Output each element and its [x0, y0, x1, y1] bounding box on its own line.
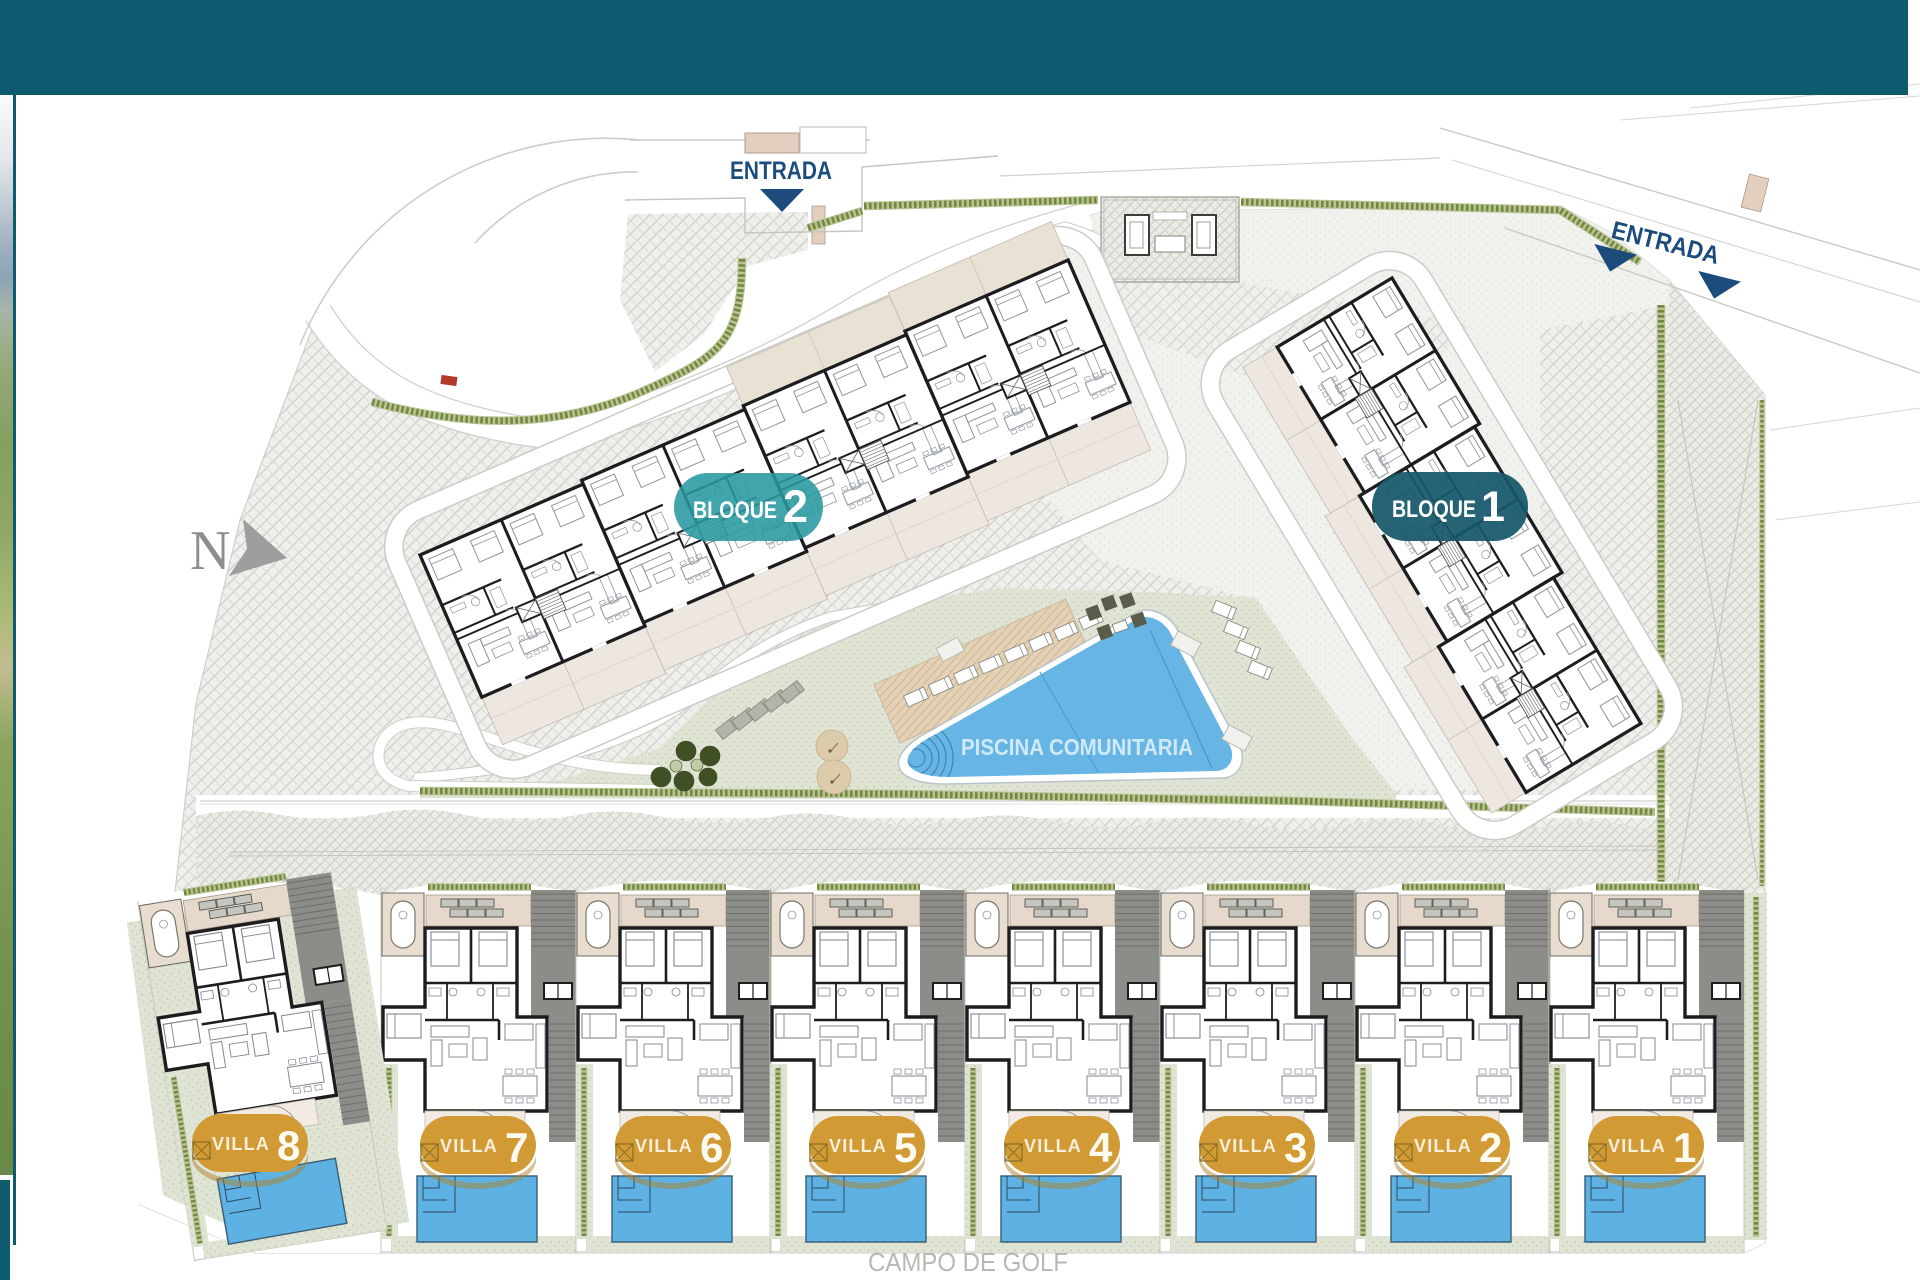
- svg-text:VILLA: VILLA: [635, 1136, 693, 1156]
- svg-text:7: 7: [505, 1124, 528, 1171]
- svg-text:3: 3: [1284, 1124, 1307, 1171]
- svg-text:VILLA: VILLA: [1219, 1136, 1277, 1156]
- svg-text:4: 4: [1089, 1124, 1113, 1171]
- svg-text:2: 2: [783, 481, 808, 532]
- svg-text:VILLA: VILLA: [440, 1136, 498, 1156]
- svg-text:VILLA: VILLA: [829, 1136, 887, 1156]
- svg-text:BLOQUE: BLOQUE: [693, 497, 777, 524]
- svg-text:2: 2: [1479, 1124, 1502, 1171]
- svg-text:CAMPO DE GOLF: CAMPO DE GOLF: [868, 1247, 1068, 1277]
- svg-text:VILLA: VILLA: [1608, 1136, 1666, 1156]
- svg-text:PISCINA COMUNITARIA: PISCINA COMUNITARIA: [961, 734, 1193, 760]
- svg-text:1: 1: [1481, 483, 1505, 531]
- svg-text:VILLA: VILLA: [1414, 1136, 1472, 1156]
- svg-text:1: 1: [1673, 1124, 1696, 1171]
- svg-text:N: N: [190, 520, 230, 582]
- svg-text:6: 6: [700, 1124, 723, 1171]
- svg-text:VILLA: VILLA: [1024, 1136, 1082, 1156]
- svg-text:8: 8: [277, 1122, 300, 1169]
- svg-text:5: 5: [894, 1124, 917, 1171]
- svg-text:VILLA: VILLA: [212, 1134, 270, 1154]
- svg-text:BLOQUE: BLOQUE: [1392, 496, 1476, 523]
- svg-text:ENTRADA: ENTRADA: [730, 157, 832, 185]
